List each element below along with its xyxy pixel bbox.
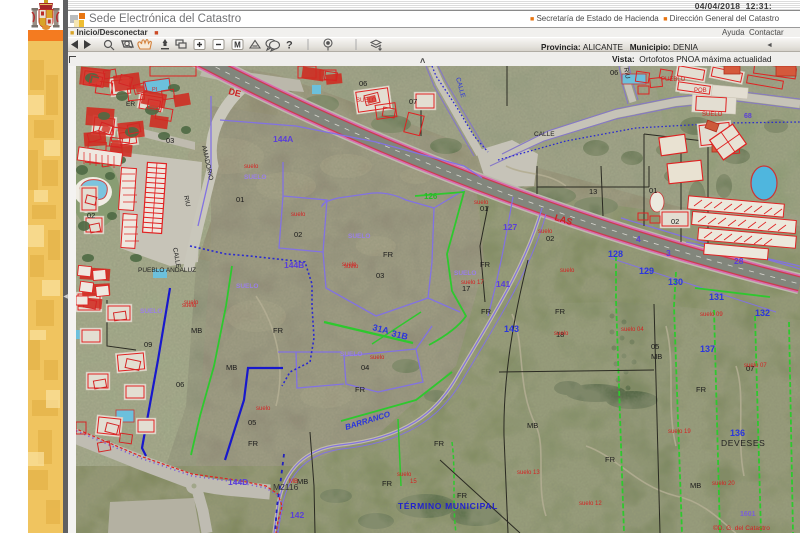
svg-text:FR: FR [273,326,284,335]
svg-text:FR: FR [696,385,707,394]
svg-text:POB: POB [694,88,707,94]
svg-text:136: 136 [730,428,745,438]
svg-text:CALLE: CALLE [534,131,555,138]
svg-text:suelo: suelo [560,268,575,274]
svg-text:142: 142 [290,510,304,520]
svg-text:28: 28 [734,256,744,266]
svg-text:06: 06 [176,380,184,389]
svg-text:MB: MB [226,363,237,372]
svg-text:suelo 09: suelo 09 [700,312,723,318]
svg-text:15: 15 [410,479,417,485]
svg-text:©D. G. del Catastro: ©D. G. del Catastro [713,524,770,532]
svg-text:suelo 13: suelo 13 [517,470,540,476]
svg-text:144A: 144A [273,134,293,144]
svg-text:06: 06 [359,79,367,88]
svg-text:SUELO: SUELO [702,112,723,118]
svg-text:FR: FR [457,491,468,500]
svg-text:127: 127 [503,222,517,232]
svg-text:FR: FR [481,307,492,316]
svg-text:suelo 12: suelo 12 [579,501,602,507]
svg-text:suelo: suelo [256,406,271,412]
svg-text:suelo: suelo [538,229,553,235]
svg-text:FR: FR [480,260,491,269]
svg-text:FR: FR [382,479,393,488]
svg-text:SUELO: SUELO [236,283,258,290]
svg-text:suelo 07: suelo 07 [744,363,767,369]
svg-text:MB: MB [527,421,538,430]
svg-text:suelo 17: suelo 17 [461,280,484,286]
svg-text:?: ? [286,40,293,52]
svg-text:07: 07 [409,97,417,106]
svg-text:SUELO: SUELO [356,98,377,104]
svg-text:FR: FR [434,439,445,448]
svg-text:FR: FR [555,307,566,316]
svg-text:suelo: suelo [554,331,569,337]
svg-text:suelo: suelo [474,200,489,206]
svg-text:03: 03 [376,271,384,280]
svg-text:132: 132 [755,308,770,318]
svg-text:144B: 144B [284,260,304,270]
svg-text:FR: FR [605,455,616,464]
svg-text:06: 06 [610,68,618,77]
svg-text:131: 131 [709,292,724,302]
svg-text:68: 68 [744,113,752,120]
svg-text:PUEBLO ANDALUZ: PUEBLO ANDALUZ [138,267,196,274]
svg-text:05: 05 [248,418,256,427]
svg-text:13: 13 [589,187,597,196]
svg-text:suelo: suelo [370,355,385,361]
svg-text:137: 137 [700,344,715,354]
svg-text:MB: MB [191,326,202,335]
svg-text:126: 126 [424,192,438,201]
svg-text:02: 02 [294,230,302,239]
svg-text:MB: MB [289,479,298,485]
svg-text:M: M [234,41,241,50]
svg-text:DEVESES: DEVESES [721,438,765,448]
svg-text:129: 129 [639,266,654,276]
svg-text:SUELO: SUELO [340,351,362,358]
svg-text:suelo 04: suelo 04 [621,327,644,333]
svg-text:141: 141 [496,279,510,289]
svg-text:SUELO: SUELO [140,308,162,315]
svg-text:SUELO: SUELO [244,174,266,181]
svg-text:suelo: suelo [244,164,259,170]
svg-text:suelo: suelo [184,300,199,306]
svg-text:02: 02 [546,234,554,243]
svg-text:144D: 144D [228,477,248,487]
svg-text:02: 02 [87,211,95,220]
svg-text:MB: MB [651,352,662,361]
svg-text:TÉRMINO MUNICIPAL: TÉRMINO MUNICIPAL [398,501,498,511]
svg-text:3: 3 [666,248,671,258]
svg-text:PUEBLO: PUEBLO [661,77,686,83]
svg-text:01: 01 [236,195,244,204]
svg-text:suelo 19: suelo 19 [668,429,691,435]
svg-text:02: 02 [671,217,679,226]
svg-text:130: 130 [668,277,683,287]
svg-text:FR: FR [248,439,259,448]
svg-text:09: 09 [144,340,152,349]
svg-text:128: 128 [608,249,623,259]
svg-text:01: 01 [649,186,657,195]
svg-text:suelo 20: suelo 20 [712,481,735,487]
svg-text:05: 05 [651,342,659,351]
svg-text:03: 03 [166,136,174,145]
svg-text:FR: FR [355,385,366,394]
svg-text:suelo: suelo [342,262,357,268]
svg-text:ER: ER [126,101,135,108]
svg-text:MB: MB [297,477,308,486]
svg-text:suelo: suelo [397,472,412,478]
svg-text:143: 143 [504,324,519,334]
svg-text:SUELO: SUELO [454,270,476,277]
svg-text:04: 04 [361,363,369,372]
svg-text:MB: MB [690,481,701,490]
svg-text:FR: FR [383,250,394,259]
svg-text:suelo: suelo [291,212,306,218]
svg-text:1601: 1601 [740,511,756,518]
svg-text:4: 4 [636,234,641,244]
svg-text:SUELO: SUELO [348,233,370,240]
